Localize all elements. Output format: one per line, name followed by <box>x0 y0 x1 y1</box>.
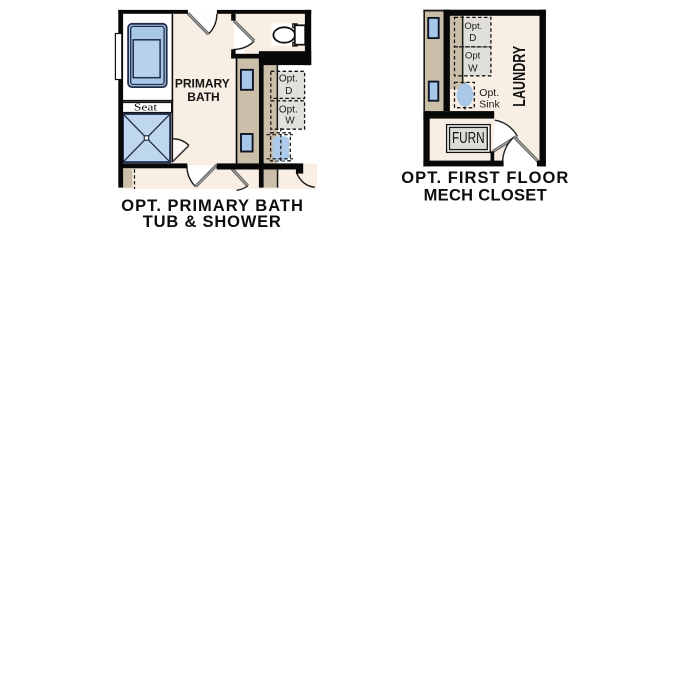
svg-text:MECH CLOSET: MECH CLOSET <box>424 187 547 205</box>
svg-text:TUB & SHOWER: TUB & SHOWER <box>143 213 282 231</box>
svg-text:Sink: Sink <box>479 99 500 111</box>
svg-text:FURN: FURN <box>452 130 485 147</box>
svg-text:BATH: BATH <box>187 90 219 104</box>
svg-text:LAUNDRY: LAUNDRY <box>509 45 529 106</box>
svg-text:D: D <box>285 86 292 97</box>
svg-text:PRIMARY: PRIMARY <box>175 77 230 91</box>
svg-text:D: D <box>469 33 476 44</box>
svg-text:W: W <box>468 63 478 74</box>
svg-text:OPT. FIRST FLOOR: OPT. FIRST FLOOR <box>401 169 569 187</box>
svg-text:Opt.: Opt. <box>479 87 499 99</box>
svg-text:Opt.: Opt. <box>279 74 298 85</box>
svg-text:Opt: Opt <box>465 50 481 61</box>
svg-text:Opt.: Opt. <box>279 104 298 115</box>
svg-text:Seat: Seat <box>134 102 157 114</box>
svg-text:W: W <box>285 115 295 126</box>
svg-text:Opt.: Opt. <box>464 21 482 32</box>
